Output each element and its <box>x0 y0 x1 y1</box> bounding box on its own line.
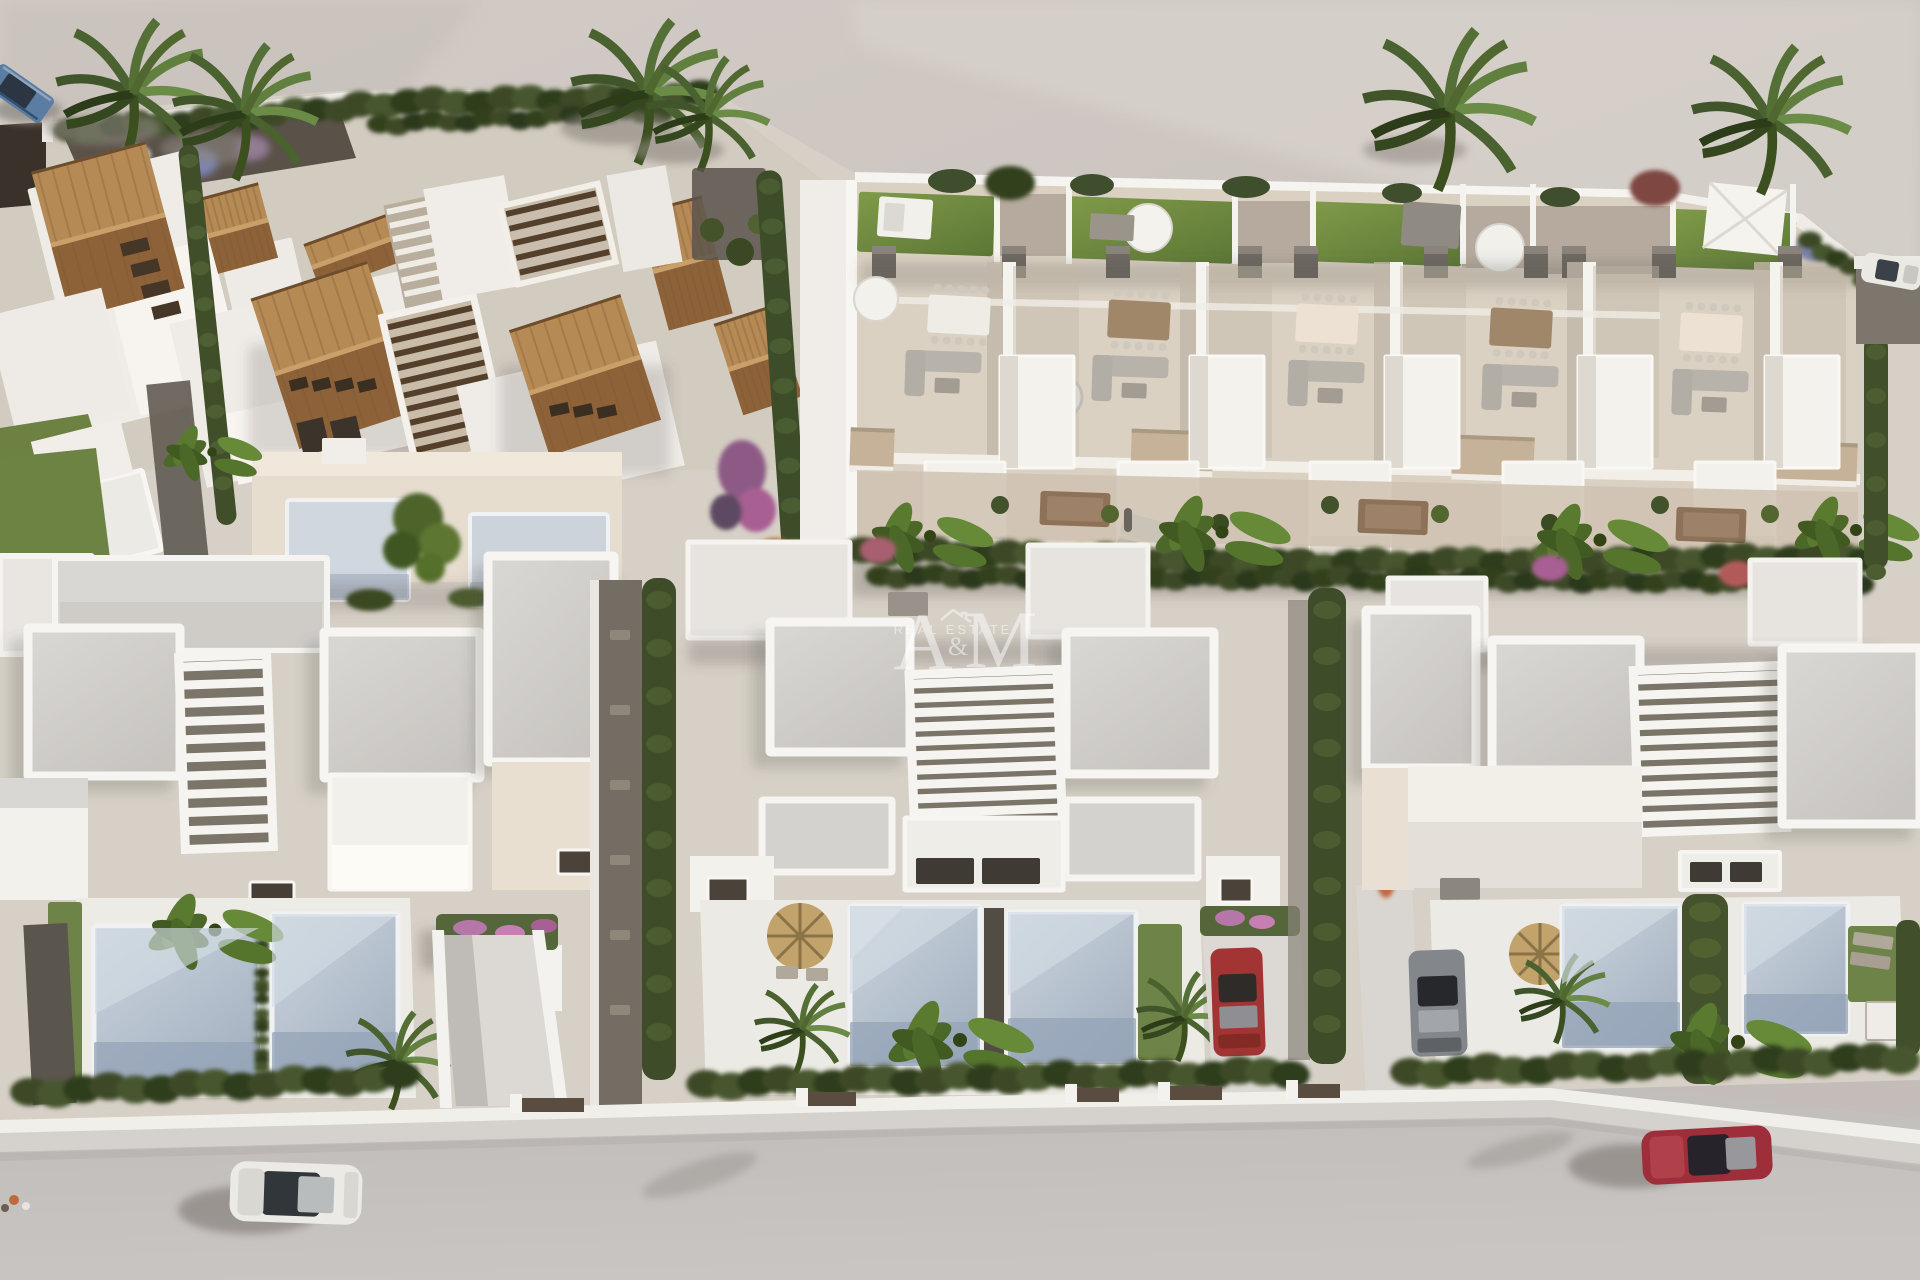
svg-text:A: A <box>893 596 952 687</box>
svg-text:M: M <box>965 594 1038 685</box>
svg-text:REAL ESTATE: REAL ESTATE <box>894 622 1013 637</box>
